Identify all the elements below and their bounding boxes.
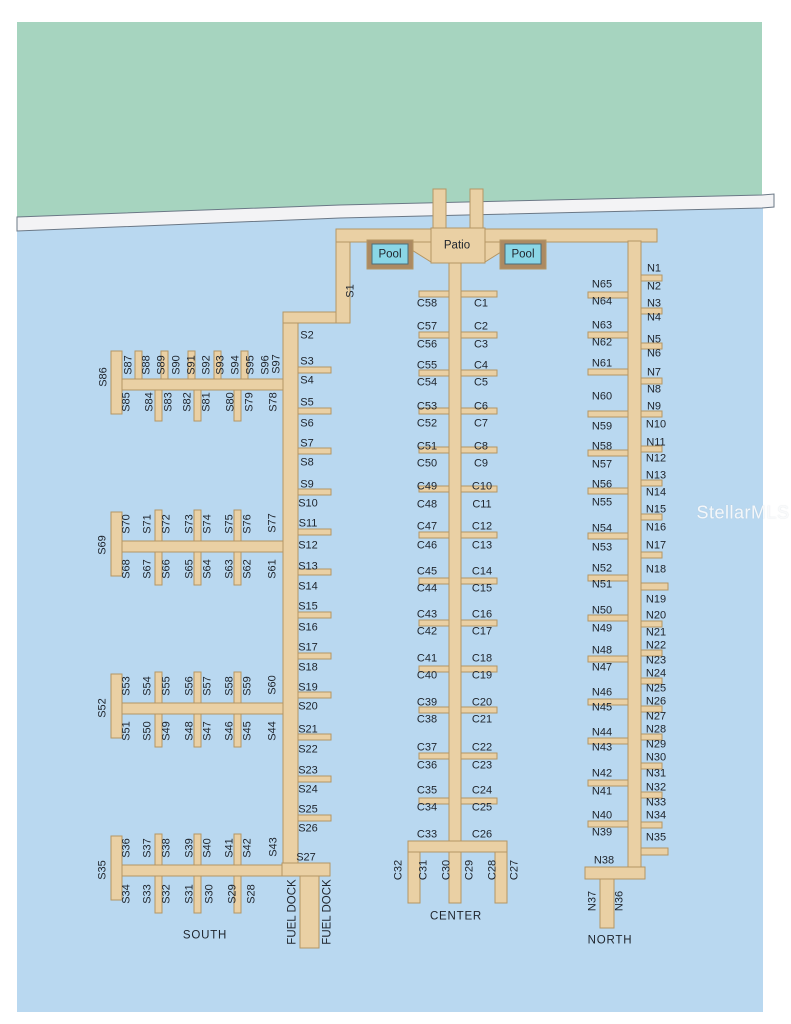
slip-label-s77: S77 — [268, 513, 279, 533]
slip-label-n25: N25 — [646, 684, 666, 695]
pool-right-label: Pool — [511, 249, 534, 261]
slip-label-n41: N41 — [592, 787, 612, 798]
slip-label-s40: S40 — [203, 838, 214, 858]
slip-label-n38: N38 — [594, 856, 614, 867]
slip-label-n20: N20 — [646, 611, 666, 622]
slip-label-n58: N58 — [592, 442, 612, 453]
slip-label-n62: N62 — [592, 338, 612, 349]
slip-label-n18: N18 — [646, 565, 666, 576]
slip-label-s97: S97 — [272, 354, 283, 374]
slip-label-n16: N16 — [646, 523, 666, 534]
slip-label-n22: N22 — [646, 641, 666, 652]
slip-label-n49: N49 — [592, 624, 612, 635]
slip-label-c47: C47 — [417, 522, 437, 533]
slip-label-n55: N55 — [592, 498, 612, 509]
slip-label-s16: S16 — [298, 623, 318, 634]
slip-label-n50: N50 — [592, 606, 612, 617]
slip-label-n4: N4 — [647, 313, 661, 324]
slip-label-c16: C16 — [472, 610, 492, 621]
slip-label-s27: S27 — [296, 853, 316, 864]
slip-label-s67: S67 — [143, 559, 154, 579]
slip-label-c26: C26 — [472, 830, 492, 841]
slip-label-s61: S61 — [268, 559, 279, 579]
slip-label-n19: N19 — [646, 595, 666, 606]
slip-label-n14: N14 — [646, 488, 666, 499]
slip-label-s87: S87 — [124, 355, 135, 375]
slip-label-s21: S21 — [298, 725, 318, 736]
slip-label-c54: C54 — [417, 378, 437, 389]
slip-label-s33: S33 — [143, 884, 154, 904]
south-end-cap — [282, 863, 330, 876]
slip-label-c42: C42 — [417, 627, 437, 638]
slip-label-s20: S20 — [298, 702, 318, 713]
fuel-dock-right-label: FUEL DOCK — [322, 879, 334, 944]
slip-label-s15: S15 — [298, 602, 318, 613]
slip-label-s48: S48 — [185, 721, 196, 741]
slip-label-c2: C2 — [474, 322, 488, 333]
slip-label-s69: S69 — [98, 535, 109, 555]
slip-label-s30: S30 — [205, 884, 216, 904]
fuel-dock-left-label: FUEL DOCK — [287, 879, 299, 944]
slip-label-s42: S42 — [243, 838, 254, 858]
slip-label-n56: N56 — [592, 480, 612, 491]
slip-label-n53: N53 — [592, 543, 612, 554]
slip-label-s57: S57 — [203, 676, 214, 696]
slip-label-n10: N10 — [646, 420, 666, 431]
slip-label-c51: C51 — [417, 442, 437, 453]
slip-label-s38: S38 — [162, 838, 173, 858]
slip-label-s23: S23 — [298, 766, 318, 777]
slip-label-s73: S73 — [185, 514, 196, 534]
slip-label-c17: C17 — [472, 627, 492, 638]
slip-label-s17: S17 — [298, 643, 318, 654]
slip-label-s6: S6 — [300, 419, 313, 430]
slip-label-c32: C32 — [394, 860, 405, 880]
slip-label-n57: N57 — [592, 460, 612, 471]
slip-label-c14: C14 — [472, 567, 492, 578]
slip-label-c43: C43 — [417, 610, 437, 621]
slip-label-c35: C35 — [417, 786, 437, 797]
slip-label-s88: S88 — [142, 355, 153, 375]
slip-label-c23: C23 — [472, 761, 492, 772]
slip-label-s14: S14 — [298, 582, 318, 593]
slip-label-s66: S66 — [162, 559, 173, 579]
slip-label-s22: S22 — [298, 745, 318, 756]
slip-label-s64: S64 — [203, 559, 214, 579]
slip-label-s13: S13 — [298, 562, 318, 573]
slip-label-s10: S10 — [298, 499, 318, 510]
slip-label-s49: S49 — [162, 721, 173, 741]
slip-label-n23: N23 — [646, 656, 666, 667]
slip-label-c30: C30 — [442, 860, 453, 880]
slip-label-c25: C25 — [472, 803, 492, 814]
slip-label-s83: S83 — [164, 392, 175, 412]
slip-label-n60: N60 — [592, 392, 612, 403]
slip-label-n12: N12 — [646, 454, 666, 465]
slip-label-c57: C57 — [417, 322, 437, 333]
slip-label-c31: C31 — [419, 860, 430, 880]
slip-label-n36: N36 — [615, 891, 626, 911]
slip-label-s35: S35 — [98, 860, 109, 880]
slip-label-n51: N51 — [592, 580, 612, 591]
slip-label-n63: N63 — [592, 321, 612, 332]
slip-label-c12: C12 — [472, 522, 492, 533]
slip-label-s7: S7 — [300, 439, 313, 450]
slip-label-c40: C40 — [417, 671, 437, 682]
slip-label-s51: S51 — [122, 721, 133, 741]
slip-label-n24: N24 — [646, 669, 666, 680]
pool-left-label: Pool — [378, 249, 401, 261]
slip-label-c20: C20 — [472, 698, 492, 709]
slip-label-s72: S72 — [162, 514, 173, 534]
slip-label-n21: N21 — [646, 628, 666, 639]
slip-label-c28: C28 — [488, 860, 499, 880]
slip-label-n5: N5 — [647, 335, 661, 346]
slip-label-s37: S37 — [143, 838, 154, 858]
slip-label-s89: S89 — [157, 355, 168, 375]
watermark: StellarMLS — [696, 503, 789, 524]
slip-label-c49: C49 — [417, 482, 437, 493]
slip-label-s62: S62 — [243, 559, 254, 579]
slip-label-s91: S91 — [187, 355, 198, 375]
slip-label-s25: S25 — [298, 805, 318, 816]
slip-label-n8: N8 — [647, 385, 661, 396]
slip-label-c56: C56 — [417, 340, 437, 351]
slip-label-n54: N54 — [592, 524, 612, 535]
slip-label-c36: C36 — [417, 761, 437, 772]
slip-label-c46: C46 — [417, 541, 437, 552]
slip-label-n37: N37 — [588, 891, 599, 911]
slip-label-s60: S60 — [268, 675, 279, 695]
slip-label-n31: N31 — [646, 769, 666, 780]
slip-label-c45: C45 — [417, 567, 437, 578]
slip-label-s47: S47 — [203, 721, 214, 741]
slip-label-s82: S82 — [183, 392, 194, 412]
slip-label-s34: S34 — [122, 884, 133, 904]
slip-label-n39: N39 — [592, 828, 612, 839]
slip-label-n47: N47 — [592, 663, 612, 674]
slip-label-n64: N64 — [592, 297, 612, 308]
slip-label-c33: C33 — [417, 830, 437, 841]
slip-label-c21: C21 — [472, 715, 492, 726]
slip-label-n43: N43 — [592, 743, 612, 754]
slip-label-s32: S32 — [162, 884, 173, 904]
slip-label-n59: N59 — [592, 422, 612, 433]
slip-label-n27: N27 — [646, 712, 666, 723]
slip-label-s65: S65 — [185, 559, 196, 579]
slip-label-s80: S80 — [226, 392, 237, 412]
slip-label-s59: S59 — [243, 676, 254, 696]
slip-label-c8: C8 — [474, 442, 488, 453]
slip-label-c4: C4 — [474, 361, 488, 372]
slip-label-s93: S93 — [216, 355, 227, 375]
slip-label-s26: S26 — [298, 824, 318, 835]
slip-label-n44: N44 — [592, 728, 612, 739]
slip-label-s11: S11 — [299, 519, 318, 530]
slip-label-c58: C58 — [417, 299, 437, 310]
slip-label-c52: C52 — [417, 419, 437, 430]
slip-label-s94: S94 — [231, 355, 242, 375]
slip-label-s76: S76 — [243, 514, 254, 534]
slip-label-s18: S18 — [298, 663, 318, 674]
slip-label-s8: S8 — [300, 458, 313, 469]
slip-label-s85: S85 — [122, 392, 133, 412]
slip-label-s84: S84 — [145, 392, 156, 412]
slip-label-n40: N40 — [592, 811, 612, 822]
area-center-label: CENTER — [430, 911, 482, 923]
slip-label-s95: S95 — [246, 355, 257, 375]
slip-label-c6: C6 — [474, 402, 488, 413]
area-south-label: SOUTH — [183, 930, 227, 942]
slip-label-c55: C55 — [417, 361, 437, 372]
slip-label-s70: S70 — [122, 514, 133, 534]
north-pier — [628, 241, 641, 878]
slip-label-c27: C27 — [510, 860, 521, 880]
slip-label-c13: C13 — [472, 541, 492, 552]
slip-label-c44: C44 — [417, 584, 437, 595]
slip-label-s58: S58 — [225, 676, 236, 696]
slip-label-n1: N1 — [647, 264, 661, 275]
slip-label-s12: S12 — [298, 541, 318, 552]
slip-label-s29: S29 — [228, 884, 239, 904]
s1-pier — [336, 240, 350, 323]
slip-label-n29: N29 — [646, 740, 666, 751]
slip-label-c10: C10 — [472, 482, 492, 493]
slip-label-c53: C53 — [417, 402, 437, 413]
fuel-dock — [300, 876, 319, 948]
patio-label: Patio — [444, 240, 470, 252]
slip-label-c7: C7 — [474, 419, 488, 430]
slip-label-n46: N46 — [592, 688, 612, 699]
slip-label-n28: N28 — [646, 725, 666, 736]
slip-label-n26: N26 — [646, 697, 666, 708]
slip-label-s4: S4 — [300, 376, 313, 387]
slip-label-n35: N35 — [646, 833, 666, 844]
slip-label-c50: C50 — [417, 459, 437, 470]
slip-label-c48: C48 — [417, 500, 437, 511]
slip-label-s1: S1 — [346, 284, 357, 297]
slip-label-s90: S90 — [172, 355, 183, 375]
slip-label-c29: C29 — [465, 860, 476, 880]
slip-label-s63: S63 — [225, 559, 236, 579]
slip-label-n32: N32 — [646, 783, 666, 794]
slip-label-n45: N45 — [592, 703, 612, 714]
area-north-label: NORTH — [588, 935, 633, 947]
slip-label-s43: S43 — [269, 837, 280, 857]
slip-label-s2: S2 — [300, 331, 313, 342]
land-area — [17, 22, 762, 218]
slip-label-c3: C3 — [474, 340, 488, 351]
slip-label-s52: S52 — [98, 698, 109, 718]
slip-label-s50: S50 — [143, 721, 154, 741]
slip-label-c39: C39 — [417, 698, 437, 709]
slip-label-s19: S19 — [298, 683, 318, 694]
slip-label-s68: S68 — [122, 559, 133, 579]
slip-label-c9: C9 — [474, 459, 488, 470]
slip-label-s79: S79 — [245, 392, 256, 412]
slip-label-s54: S54 — [143, 676, 154, 696]
slip-label-c22: C22 — [472, 743, 492, 754]
slip-label-n6: N6 — [647, 349, 661, 360]
slip-label-s28: S28 — [247, 884, 258, 904]
slip-label-n65: N65 — [592, 280, 612, 291]
slip-label-n3: N3 — [647, 299, 661, 310]
slip-label-c18: C18 — [472, 654, 492, 665]
slip-label-n48: N48 — [592, 646, 612, 657]
slip-label-s75: S75 — [225, 514, 236, 534]
slip-label-s9: S9 — [300, 480, 313, 491]
slip-label-s55: S55 — [162, 676, 173, 696]
slip-label-n15: N15 — [646, 505, 666, 516]
slip-label-n30: N30 — [646, 753, 666, 764]
slip-label-c15: C15 — [472, 584, 492, 595]
marina-dock-map: PatioPoolPoolFUEL DOCKFUEL DOCKSOUTHCENT… — [0, 0, 791, 1024]
slip-label-s53: S53 — [122, 676, 133, 696]
slip-label-s92: S92 — [202, 355, 213, 375]
slip-label-c38: C38 — [417, 715, 437, 726]
center-pier — [449, 263, 461, 848]
slip-label-n61: N61 — [592, 359, 612, 370]
slip-label-s46: S46 — [225, 721, 236, 741]
slip-label-c19: C19 — [472, 671, 492, 682]
slip-label-n13: N13 — [646, 471, 666, 482]
slip-label-c11: C11 — [472, 500, 491, 511]
slip-label-n9: N9 — [647, 402, 661, 413]
slip-label-n17: N17 — [646, 541, 666, 552]
slip-label-c34: C34 — [417, 803, 437, 814]
slip-label-c1: C1 — [474, 299, 488, 310]
slip-label-c41: C41 — [417, 654, 437, 665]
slip-label-s44: S44 — [268, 721, 279, 741]
slip-label-s74: S74 — [203, 514, 214, 534]
slip-label-s78: S78 — [269, 392, 280, 412]
slip-label-s39: S39 — [185, 838, 196, 858]
slip-label-s24: S24 — [298, 785, 318, 796]
slip-label-n42: N42 — [592, 769, 612, 780]
slip-label-s45: S45 — [243, 721, 254, 741]
slip-label-n7: N7 — [647, 368, 661, 379]
slip-label-n11: N11 — [646, 438, 665, 449]
slip-label-n2: N2 — [647, 282, 661, 293]
slip-label-c37: C37 — [417, 743, 437, 754]
slip-label-s41: S41 — [225, 838, 236, 858]
slip-label-n34: N34 — [646, 811, 666, 822]
slip-label-s71: S71 — [143, 514, 154, 534]
slip-label-s56: S56 — [185, 676, 196, 696]
slip-label-s5: S5 — [300, 398, 313, 409]
south-pier — [283, 312, 298, 872]
slip-label-c5: C5 — [474, 378, 488, 389]
slip-label-s31: S31 — [185, 884, 196, 904]
slip-label-s3: S3 — [300, 357, 313, 368]
slip-label-s81: S81 — [202, 392, 213, 412]
slip-label-s36: S36 — [122, 838, 133, 858]
slip-label-s86: S86 — [99, 367, 110, 387]
slip-label-n33: N33 — [646, 798, 666, 809]
slip-label-c24: C24 — [472, 786, 492, 797]
slip-label-n52: N52 — [592, 564, 612, 575]
